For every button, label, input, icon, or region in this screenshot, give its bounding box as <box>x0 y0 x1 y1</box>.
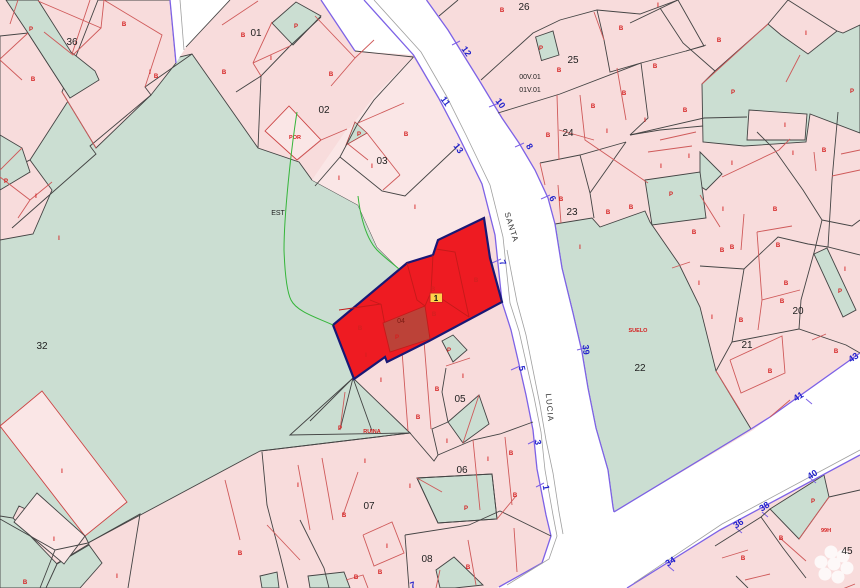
svg-text:B: B <box>606 210 611 216</box>
svg-text:B: B <box>559 197 564 203</box>
svg-text:B: B <box>834 349 839 355</box>
svg-text:24: 24 <box>562 128 574 139</box>
svg-text:B: B <box>431 287 436 293</box>
svg-text:B: B <box>730 245 735 251</box>
svg-text:B: B <box>622 91 627 97</box>
svg-text:B: B <box>241 33 246 39</box>
svg-text:B: B <box>354 575 359 581</box>
svg-text:03: 03 <box>376 156 388 167</box>
svg-text:B: B <box>342 513 347 519</box>
svg-text:B: B <box>546 133 551 139</box>
svg-text:B: B <box>474 278 479 284</box>
svg-text:B: B <box>776 243 781 249</box>
svg-text:P: P <box>4 179 8 185</box>
svg-text:20: 20 <box>792 306 804 317</box>
svg-text:39: 39 <box>580 344 591 355</box>
svg-text:B: B <box>768 369 773 375</box>
svg-text:B: B <box>683 108 688 114</box>
svg-text:B: B <box>739 318 744 324</box>
svg-text:EST: EST <box>271 210 285 217</box>
svg-text:B: B <box>591 104 596 110</box>
svg-text:B: B <box>238 551 243 557</box>
svg-text:B: B <box>329 72 334 78</box>
svg-text:B: B <box>378 570 383 576</box>
svg-text:22: 22 <box>634 363 646 374</box>
svg-text:B: B <box>154 74 159 80</box>
svg-text:07: 07 <box>363 501 375 512</box>
svg-text:B: B <box>500 8 505 14</box>
svg-text:B: B <box>779 536 784 542</box>
svg-text:45: 45 <box>841 546 853 557</box>
svg-text:04: 04 <box>397 318 405 325</box>
svg-text:B: B <box>31 77 36 83</box>
svg-text:P: P <box>338 426 342 432</box>
svg-text:B: B <box>773 207 778 213</box>
svg-text:B: B <box>435 387 440 393</box>
svg-text:36: 36 <box>66 37 78 48</box>
svg-text:1: 1 <box>434 294 439 303</box>
svg-text:P: P <box>669 192 673 198</box>
svg-text:B: B <box>222 70 227 76</box>
svg-text:P: P <box>838 289 842 295</box>
svg-text:B: B <box>717 38 722 44</box>
svg-text:B: B <box>513 493 518 499</box>
svg-text:P: P <box>29 27 33 33</box>
svg-text:26: 26 <box>518 2 530 13</box>
svg-text:B: B <box>784 281 789 287</box>
svg-text:02: 02 <box>318 105 330 116</box>
svg-text:P: P <box>731 90 735 96</box>
svg-text:B: B <box>509 451 514 457</box>
svg-text:B: B <box>741 556 746 562</box>
svg-text:06: 06 <box>456 465 468 476</box>
svg-text:B: B <box>122 22 127 28</box>
svg-text:B: B <box>416 415 421 421</box>
svg-text:P: P <box>850 89 854 95</box>
svg-text:B: B <box>692 230 697 236</box>
svg-text:B: B <box>404 132 409 138</box>
svg-text:B: B <box>619 26 624 32</box>
svg-text:B: B <box>358 326 363 332</box>
svg-text:05: 05 <box>454 394 466 405</box>
svg-text:P: P <box>464 506 468 512</box>
svg-text:99H: 99H <box>821 528 831 534</box>
svg-text:B: B <box>822 148 827 154</box>
svg-text:21: 21 <box>741 340 753 351</box>
svg-text:B: B <box>720 248 725 254</box>
svg-text:01: 01 <box>250 28 262 39</box>
svg-text:P: P <box>539 46 543 52</box>
svg-text:P: P <box>357 132 361 138</box>
svg-text:08: 08 <box>421 554 433 565</box>
svg-text:POR: POR <box>289 135 301 141</box>
svg-text:B: B <box>653 64 658 70</box>
svg-text:B: B <box>23 580 28 586</box>
svg-text:B: B <box>466 565 471 571</box>
svg-text:32: 32 <box>36 341 48 352</box>
svg-text:B: B <box>432 312 437 318</box>
svg-text:P: P <box>294 24 298 30</box>
svg-text:P: P <box>395 335 399 341</box>
svg-text:00V.01: 00V.01 <box>519 74 541 81</box>
svg-text:RUINA: RUINA <box>363 429 380 435</box>
svg-text:B: B <box>780 299 785 305</box>
svg-text:01V.01: 01V.01 <box>519 87 541 94</box>
svg-text:P: P <box>811 499 815 505</box>
svg-text:B: B <box>629 205 634 211</box>
svg-text:25: 25 <box>567 55 579 66</box>
svg-text:23: 23 <box>566 207 578 218</box>
svg-text:B: B <box>557 68 562 74</box>
svg-text:P: P <box>447 348 451 354</box>
svg-text:SUELO: SUELO <box>629 328 649 334</box>
